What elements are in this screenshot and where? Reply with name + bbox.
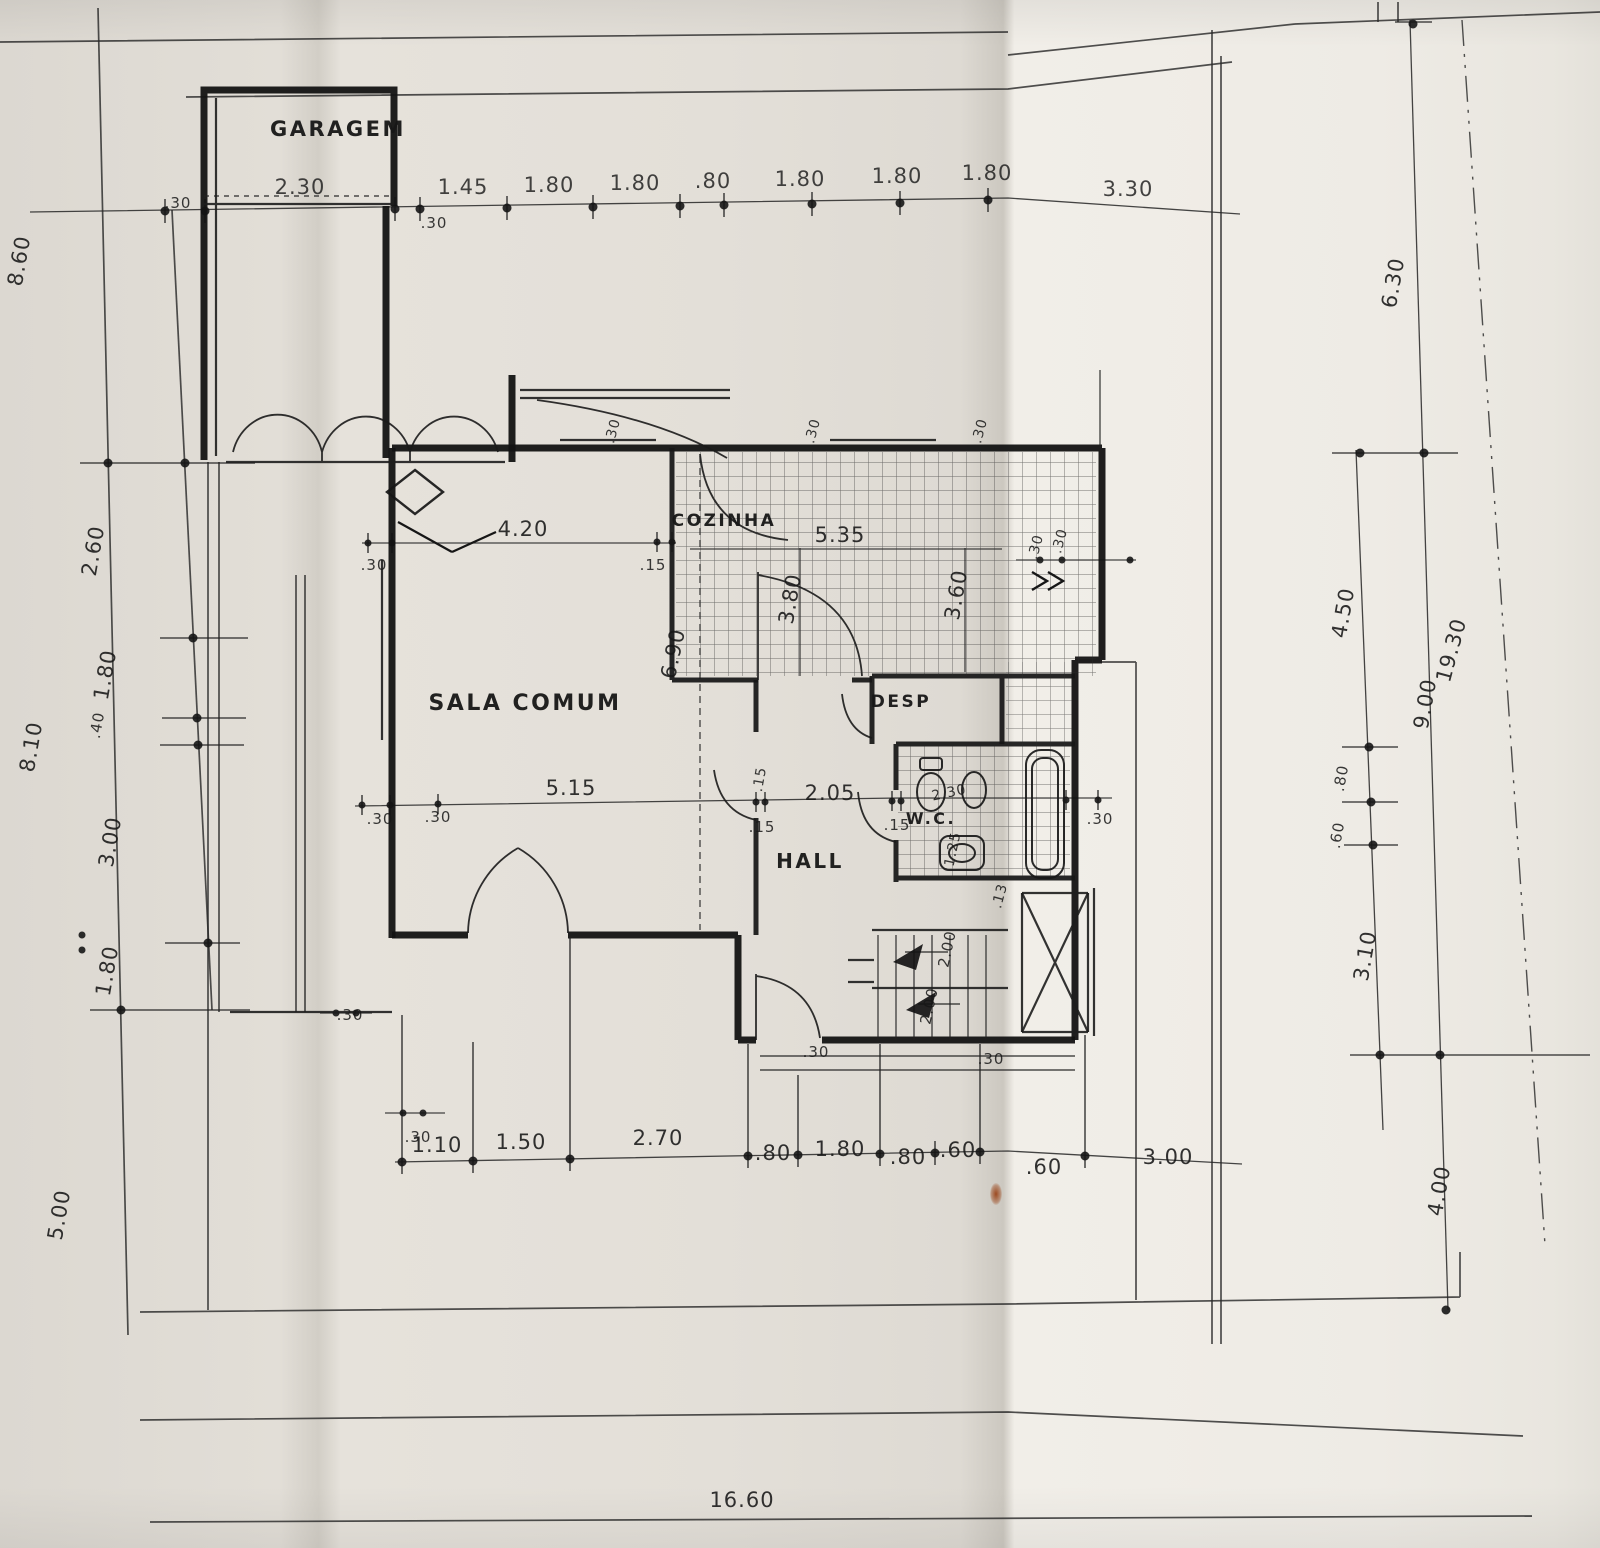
room-label-sala-comum: SALA COMUM: [428, 691, 621, 716]
dim-label: 1.45: [438, 175, 489, 199]
dim-label: .30: [337, 1006, 364, 1024]
dim-label: 6.30: [1377, 256, 1409, 310]
top-dimension-labels: .30 2.30 .30 1.45 1.80 1.80 .80 1.80 1.8…: [165, 161, 1154, 232]
dim-label: 4.50: [1327, 586, 1359, 640]
rust-stain: [990, 1183, 1002, 1205]
dim-label: 1.50: [496, 1130, 547, 1154]
room-label-hall: HALL: [776, 849, 844, 873]
dim-label: 4.00: [1423, 1164, 1455, 1218]
dim-label: 4.20: [498, 517, 549, 541]
dim-label: .80: [755, 1141, 791, 1165]
dim-label: 1.80: [91, 944, 123, 998]
dim-label: 8.60: [3, 234, 35, 288]
site-boundary-lines: [0, 2, 1600, 1522]
dim-label-total-width: 16.60: [709, 1488, 774, 1512]
dim-label: 1.80: [524, 173, 575, 197]
dim-label: 8.10: [15, 720, 47, 774]
dim-label: .30: [1087, 810, 1114, 828]
dim-label: .30: [969, 417, 991, 446]
dim-label: 5.35: [815, 523, 866, 547]
dim-label: 2.05: [805, 781, 856, 805]
left-dimension-labels: 8.60 2.60 1.80 .40 8.10 3.00 1.80 5.00: [3, 234, 126, 1242]
dim-label: 9.00: [1409, 677, 1441, 731]
dim-label: 3.00: [94, 815, 126, 869]
dim-label: .80: [695, 169, 731, 193]
dim-label: 5.15: [546, 776, 597, 800]
dim-label: .30: [425, 808, 452, 826]
dim-label: .30: [802, 417, 824, 446]
dim-label: .15: [749, 818, 776, 836]
dim-label: 1.80: [872, 164, 923, 188]
dim-label: .15: [750, 765, 770, 793]
dim-label: .30: [421, 214, 448, 232]
dim-label: 2.00: [916, 986, 941, 1026]
dim-label: 1.80: [962, 161, 1013, 185]
dim-label: 1.80: [775, 167, 826, 191]
dim-label: 5.00: [43, 1188, 75, 1242]
bottom-dimension-labels: 1.10 1.50 2.70 .80 1.80 .80 .60 .60 3.00…: [412, 1126, 1194, 1512]
room-label-cozinha: COZINHA: [672, 511, 777, 531]
dim-label: 2.00: [934, 929, 959, 969]
dim-label: .80: [890, 1145, 926, 1169]
stair-arrow-icon: [893, 944, 923, 970]
dim-label: 1.80: [89, 648, 121, 702]
dim-label: .30: [803, 1043, 830, 1061]
dim-label: 1.80: [610, 171, 661, 195]
dim-label: 2.70: [633, 1126, 684, 1150]
dim-label: .60: [1026, 1155, 1062, 1179]
dim-label: .40: [86, 710, 108, 740]
dim-label: .30: [361, 556, 388, 574]
dim-label: .30: [978, 1050, 1005, 1068]
dim-label: .30: [405, 1128, 432, 1146]
dim-label: 2.60: [77, 524, 109, 578]
room-label-desp: DESP: [871, 692, 931, 712]
right-dimension-labels: 6.30 4.50 .80 .60 3.10 9.00 4.00 19.30: [1326, 256, 1471, 1218]
room-label-wc: W.C.: [906, 809, 956, 828]
dim-label: .30: [165, 194, 192, 212]
dim-label: .80: [1330, 763, 1352, 793]
floor-plan-drawing: GARAGEM SALA COMUM COZINHA DESP W.C. HAL…: [0, 0, 1600, 1548]
dim-label: .15: [884, 816, 911, 834]
room-label-garagem: GARAGEM: [270, 117, 406, 141]
dim-label: 3.00: [1143, 1145, 1194, 1169]
dim-label: .30: [367, 810, 394, 828]
dim-label: .15: [640, 556, 667, 574]
dim-label: 1.80: [815, 1137, 866, 1161]
blueprint-paper: GARAGEM SALA COMUM COZINHA DESP W.C. HAL…: [0, 0, 1600, 1548]
dim-label: .60: [940, 1138, 976, 1162]
dim-label: 19.30: [1431, 616, 1471, 685]
dim-label: 2.30: [275, 175, 326, 199]
dim-label: 3.30: [1103, 177, 1154, 201]
dim-label: .13: [989, 882, 1011, 911]
